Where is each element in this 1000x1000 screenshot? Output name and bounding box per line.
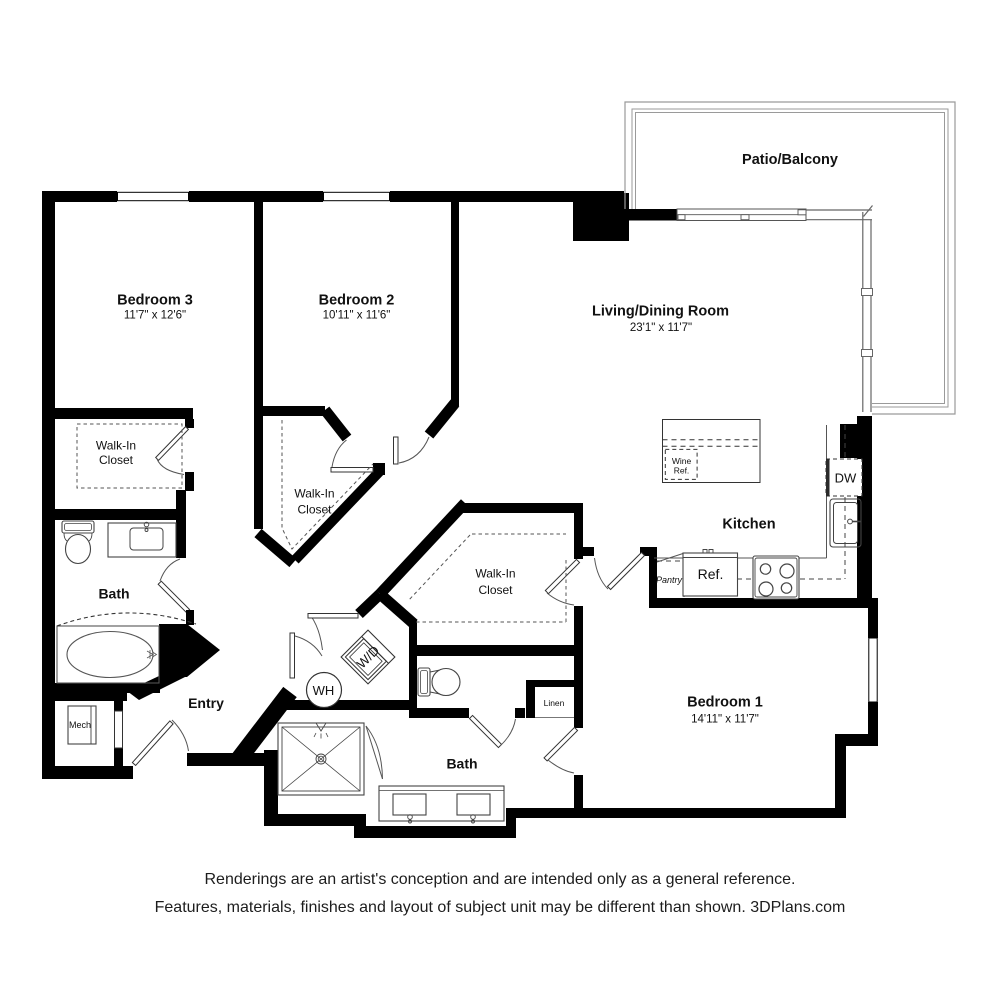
svg-text:Walk-In: Walk-In	[475, 567, 515, 581]
svg-text:Pantry: Pantry	[656, 575, 683, 585]
svg-text:Bedroom 3: Bedroom 3	[117, 293, 193, 309]
svg-text:Ref.: Ref.	[674, 466, 690, 476]
svg-text:23'1" x 11'7": 23'1" x 11'7"	[630, 322, 692, 334]
svg-text:11'7" x 12'6": 11'7" x 12'6"	[124, 310, 186, 322]
svg-text:Closet: Closet	[297, 503, 332, 517]
svg-text:Features, materials, finishes: Features, materials, finishes and layout…	[155, 899, 846, 916]
svg-text:DW: DW	[835, 471, 857, 486]
svg-text:Ref.: Ref.	[698, 566, 724, 582]
svg-text:Closet: Closet	[99, 453, 134, 467]
svg-text:Living/Dining Room: Living/Dining Room	[592, 304, 729, 320]
svg-text:Kitchen: Kitchen	[722, 517, 775, 533]
svg-text:Wine: Wine	[672, 456, 692, 466]
svg-text:Walk-In: Walk-In	[96, 439, 136, 453]
svg-text:Bath: Bath	[446, 756, 477, 772]
svg-text:Linen: Linen	[544, 698, 565, 708]
svg-text:WH: WH	[313, 683, 335, 698]
svg-text:Bedroom 2: Bedroom 2	[319, 293, 395, 309]
svg-text:Closet: Closet	[478, 583, 513, 597]
svg-text:Bath: Bath	[98, 586, 129, 602]
svg-text:Entry: Entry	[188, 695, 224, 711]
svg-text:Patio/Balcony: Patio/Balcony	[742, 152, 838, 168]
svg-text:14'11" x 11'7": 14'11" x 11'7"	[691, 714, 759, 726]
svg-text:Renderings are an artist's con: Renderings are an artist's conception an…	[205, 871, 796, 888]
svg-text:Walk-In: Walk-In	[294, 487, 334, 501]
svg-text:Bedroom 1: Bedroom 1	[687, 695, 763, 711]
svg-text:Mech: Mech	[69, 720, 91, 730]
svg-text:10'11" x 11'6": 10'11" x 11'6"	[323, 310, 391, 322]
